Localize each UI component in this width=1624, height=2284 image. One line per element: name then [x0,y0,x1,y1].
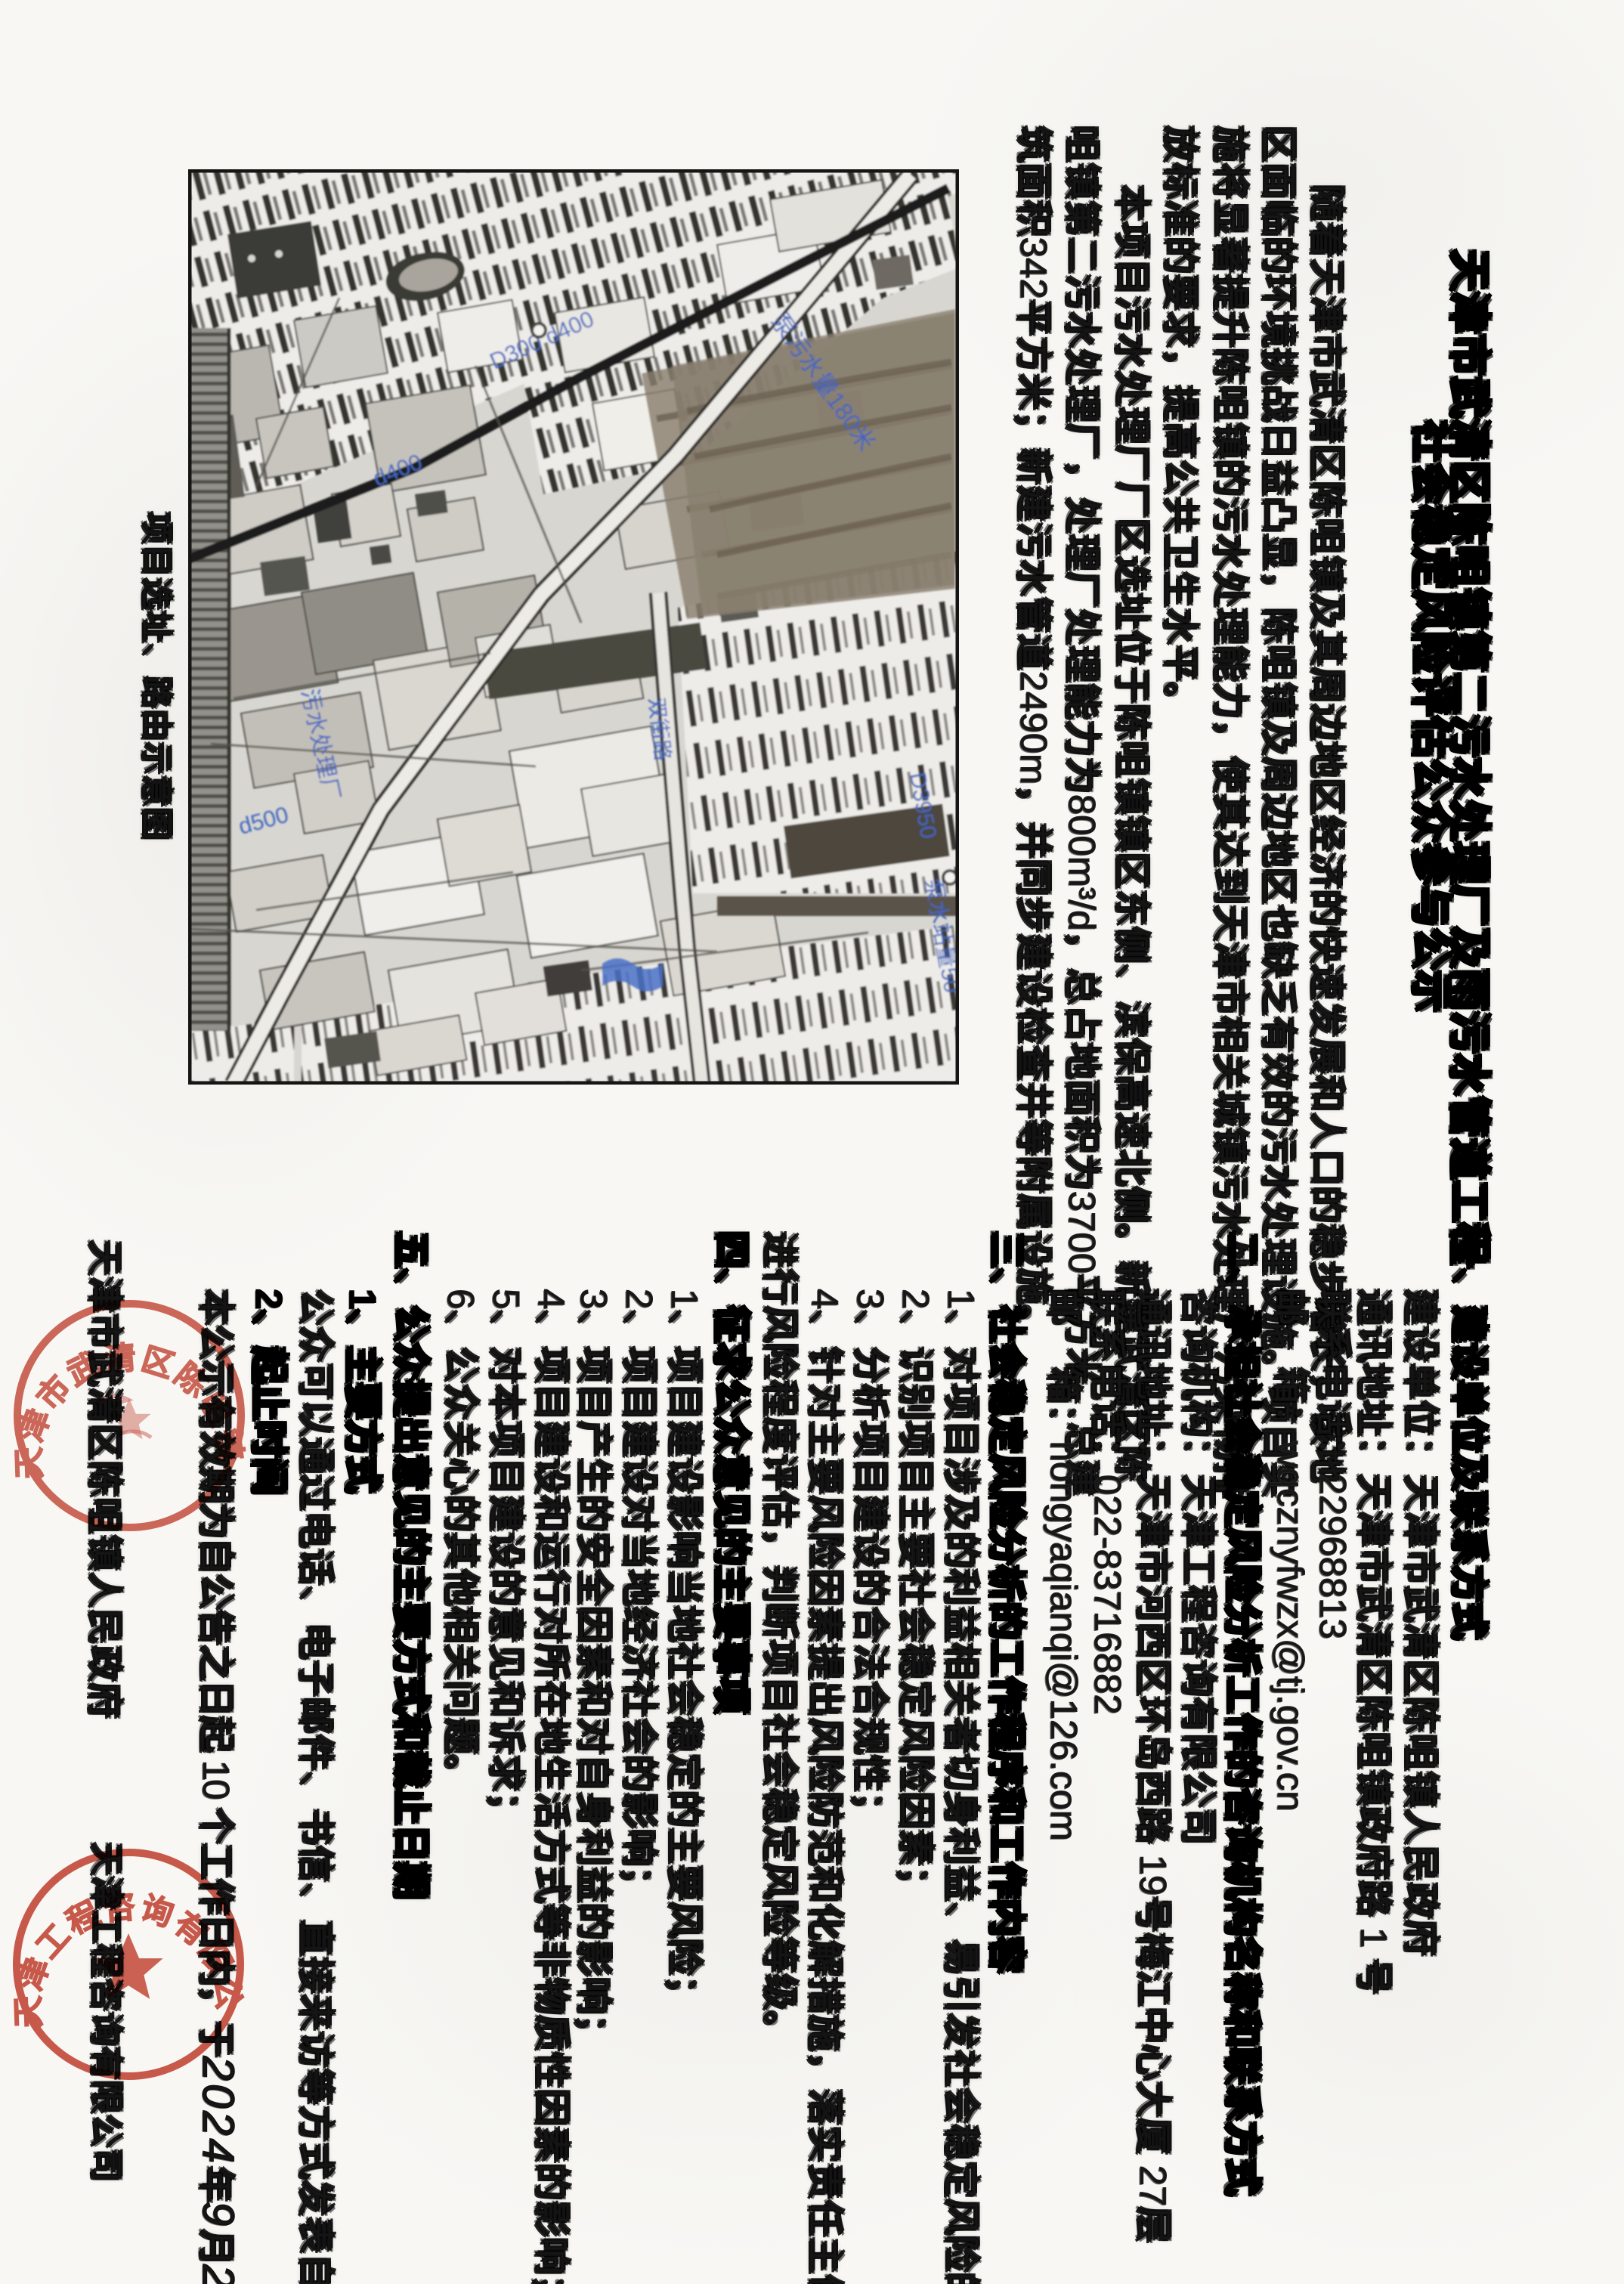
svg-text:天津市武清区陈咀镇人民政府: 天津市武清区陈咀镇人民政府 [5,1291,249,1480]
svg-text:天津工程咨询有限公司: 天津工程咨询有限公司 [4,1840,248,2029]
